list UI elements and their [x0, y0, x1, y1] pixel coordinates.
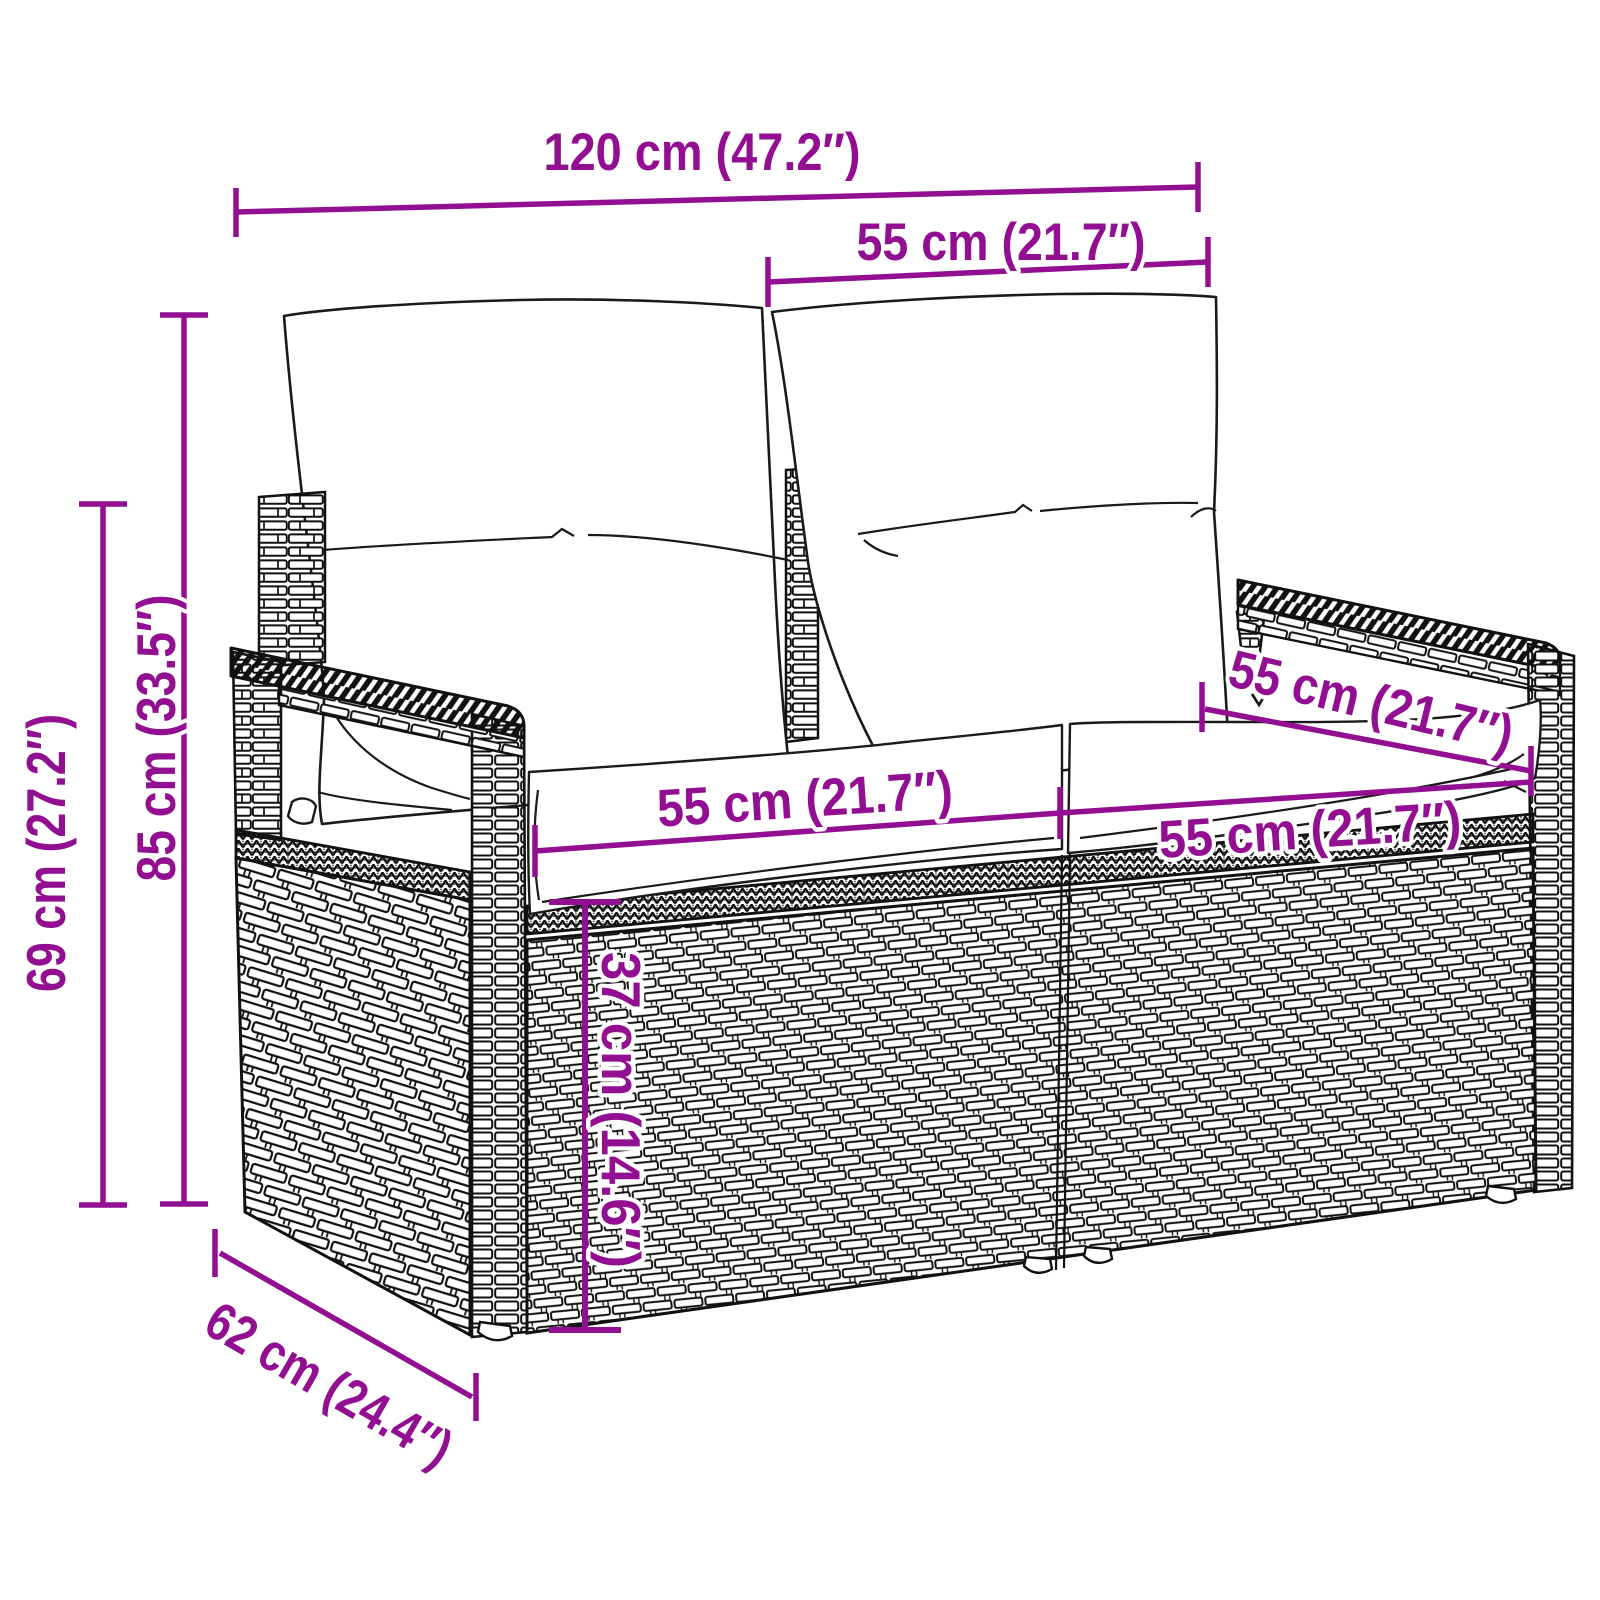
svg-text:69 cm (27.2″): 69 cm (27.2″): [15, 714, 77, 992]
svg-text:120 cm (47.2″): 120 cm (47.2″): [544, 123, 861, 182]
svg-text:85 cm (33.5″): 85 cm (33.5″): [125, 595, 187, 882]
svg-text:55 cm (21.7″): 55 cm (21.7″): [857, 213, 1146, 272]
svg-text:37 cm (14.6″): 37 cm (14.6″): [590, 952, 652, 1268]
